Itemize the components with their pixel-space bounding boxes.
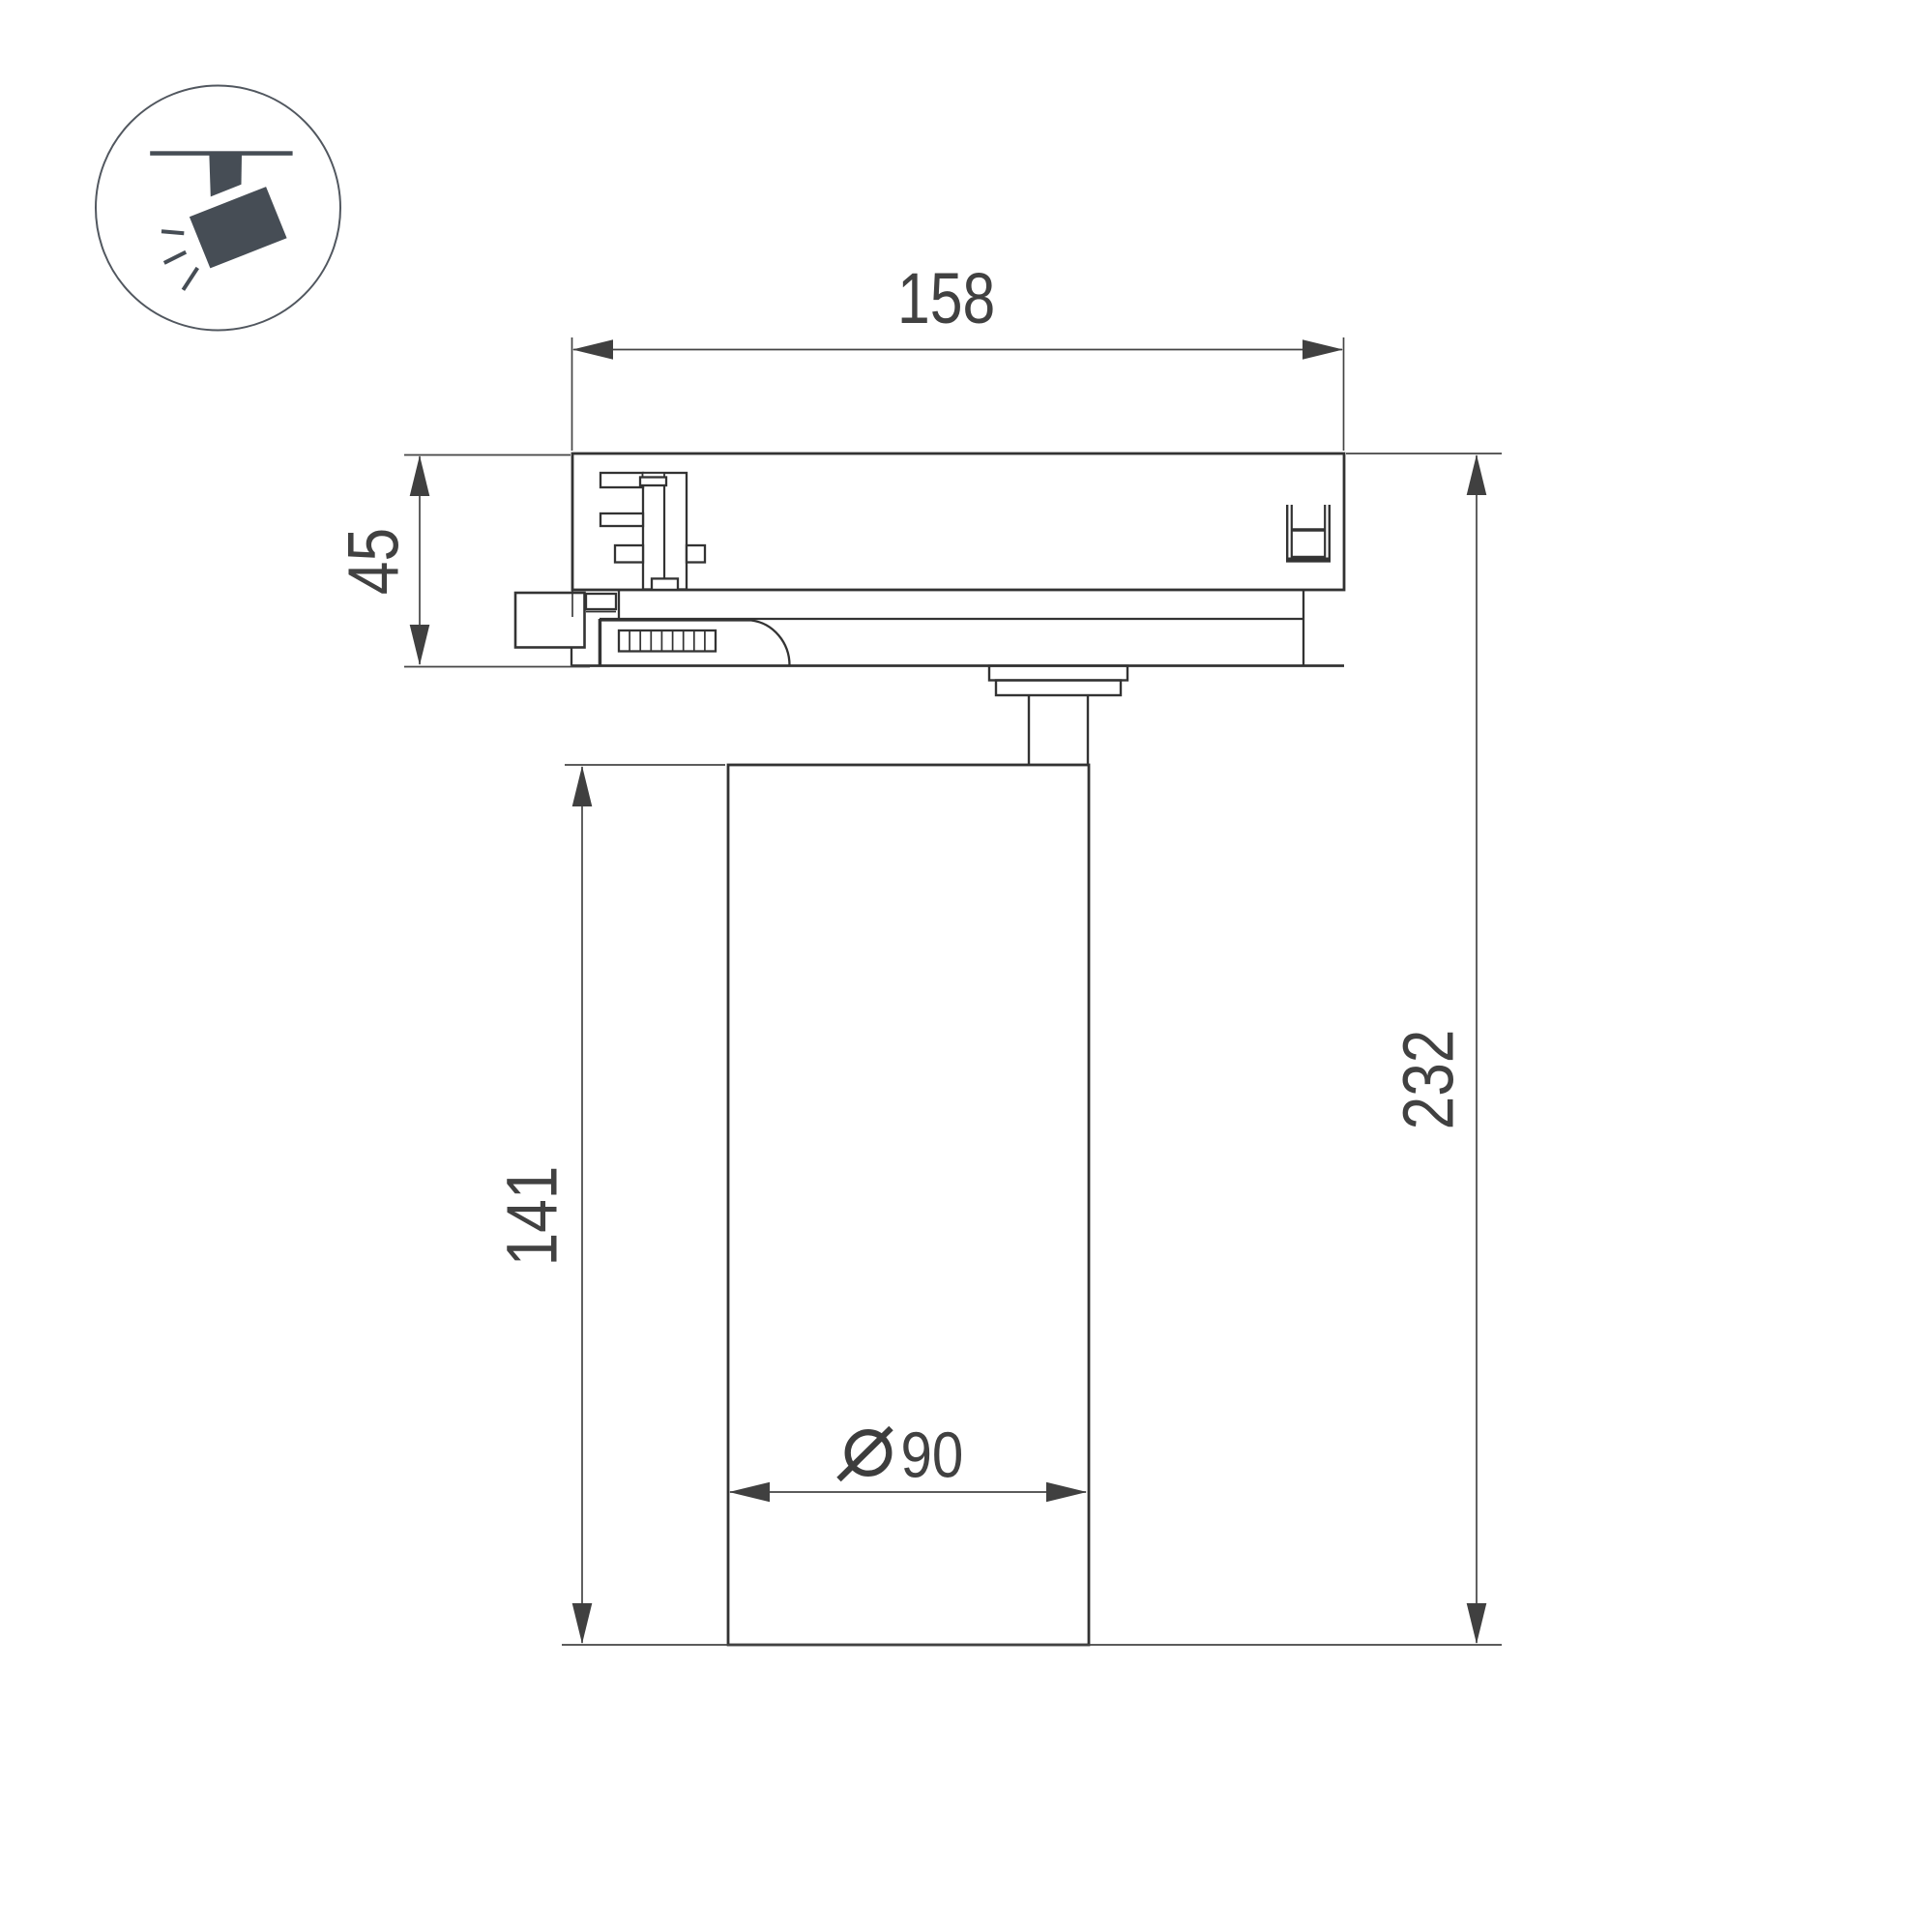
- svg-text:90: 90: [900, 1420, 963, 1492]
- svg-text:232: 232: [1389, 1030, 1468, 1130]
- svg-text:158: 158: [897, 259, 995, 338]
- svg-text:141: 141: [492, 1166, 571, 1267]
- svg-text:45: 45: [334, 528, 413, 595]
